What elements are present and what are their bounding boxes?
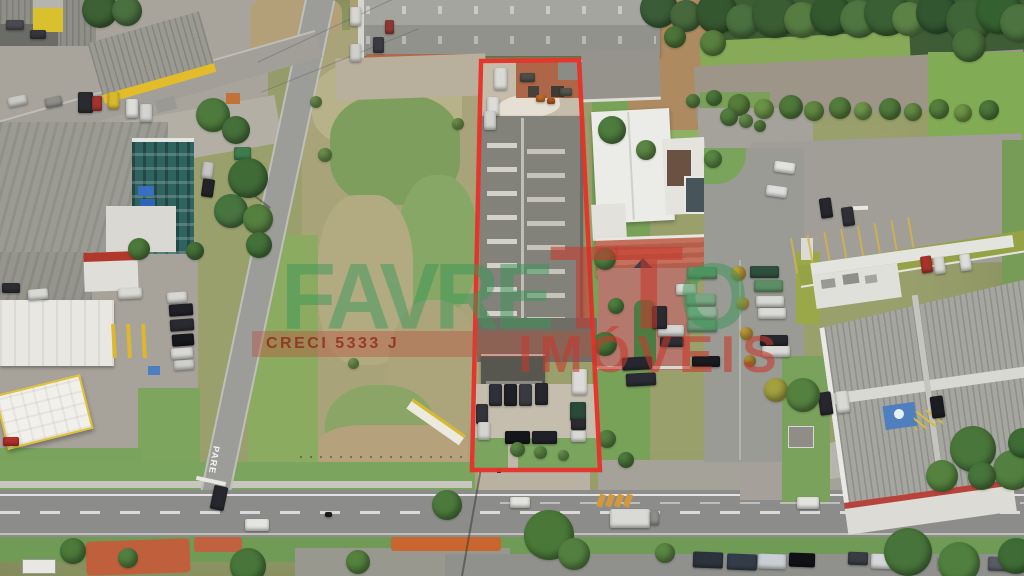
vehicle [572,369,587,395]
vehicle [750,266,779,278]
tree [700,30,726,56]
vehicle [174,359,195,370]
vehicle [819,197,834,218]
tree [593,332,617,356]
tree [664,26,686,48]
vehicle [385,20,394,34]
upper-lot-arrow [852,206,868,211]
vehicle [687,267,717,279]
tree [346,550,370,574]
vehicle [350,44,361,62]
red-roof-shop [83,251,138,292]
warehouse-top-skylights-1 [366,6,656,14]
rooftop-vent-1 [821,278,836,289]
tree [186,242,204,260]
vehicle [536,95,545,102]
vehicle [2,283,20,293]
tree [929,99,949,119]
aerial-photo-scene: PARE [0,0,1024,576]
tree [744,355,756,367]
property-warehouse-skylights-left [487,124,517,318]
vehicle [520,73,535,82]
vehicle [560,88,572,96]
vehicle [727,553,758,570]
tree [904,103,922,121]
white-clinic-left-wing [591,203,627,241]
vehicle [650,511,659,525]
tree [706,90,722,106]
vehicle [201,178,215,197]
vehicle [652,306,667,329]
vehicle [350,7,361,26]
vehicle [478,422,490,440]
tree [230,548,266,576]
tree [804,101,824,121]
property-warehouse-skylights-right [527,130,565,318]
vehicle [622,356,653,371]
tree [754,99,774,119]
vehicle [373,37,384,53]
tree [636,140,656,160]
tree [60,538,86,564]
median-paint-orange-3 [391,537,501,551]
tree [926,460,958,492]
tree [118,548,138,568]
tree [879,98,901,120]
warehouse-right-wing [581,49,661,103]
retail-white-top-strip [810,235,1014,275]
vehicle [687,307,717,319]
tree [228,158,268,198]
property-shed-gray-roof [558,62,582,80]
vehicle [169,303,194,317]
vehicle [519,384,532,406]
vehicle [510,497,530,508]
vehicle [172,333,195,347]
vehicle [532,431,557,444]
vehicle [660,337,684,347]
tree [598,430,616,448]
avenue-edge-line-bottom [0,533,1024,535]
tree [854,102,872,120]
vehicle [687,320,717,332]
vehicle [758,308,786,319]
vehicle [118,287,143,299]
vehicle [754,280,783,292]
tree [318,148,332,162]
tree [979,100,999,120]
tree [510,442,525,457]
vehicle [494,68,507,90]
tree [222,116,250,144]
tree [740,327,753,340]
vehicle [535,383,548,405]
tree [704,150,722,168]
clinic-parking-lane-line [739,260,741,460]
tree [534,446,547,459]
property-warehouse-ridge [521,118,524,318]
tree [558,450,569,461]
vehicle [760,335,788,346]
vehicle [547,98,555,104]
tree [736,297,749,310]
tree [952,28,986,62]
vehicle [686,294,716,306]
grass-top-right-corner [928,52,1024,140]
tree [432,490,462,520]
tree [786,378,820,412]
tree [655,543,675,563]
rooftop-tarp-1 [138,186,154,196]
tree [764,378,788,402]
tree [938,542,980,576]
vehicle [841,206,856,226]
vehicle [171,347,194,360]
vehicle [848,552,868,566]
vehicle [626,372,657,387]
vehicle [789,553,815,568]
median-paint-orange-2 [194,537,242,552]
tree [618,452,634,468]
white-flat-building [0,300,114,366]
tree [954,104,972,122]
tree [754,120,766,132]
vehicle [756,296,784,307]
vehicle [30,30,46,39]
vehicle [758,554,787,570]
tree [452,118,464,130]
tree [128,238,150,260]
tree [594,248,616,270]
vehicle [920,255,933,273]
blue-pavement-mark [148,366,160,375]
vehicle [692,356,720,367]
vehicle [504,384,517,406]
warehouse-top-skylights-2 [366,36,656,44]
tree [968,462,996,490]
vehicle [78,92,93,113]
vehicle [245,519,269,531]
tree [246,232,272,258]
vehicle [108,92,119,109]
tree [608,298,624,314]
tree [829,97,851,119]
vehicle [170,318,195,332]
vehicle [28,288,49,301]
tree [348,358,359,369]
vehicle [6,20,24,30]
utility-shed [788,426,814,448]
tree [884,528,932,576]
orange-hut [226,93,240,104]
tree [779,95,803,119]
vehicle [959,253,972,271]
vehicle [797,497,819,509]
yellow-kiosk [33,0,63,32]
tree [731,266,746,281]
tree [598,116,626,144]
median-paint-orange-1 [85,538,190,576]
bus-shelter [22,559,56,574]
sidewalk-left [0,481,472,488]
vehicle [92,96,102,111]
vehicle [933,256,946,274]
vehicle [476,404,488,424]
vehicle [3,437,19,446]
vehicle [693,551,724,568]
vehicle [610,509,650,528]
vehicle [571,431,586,442]
tree [739,114,753,128]
vehicle [489,384,502,406]
tree [720,108,738,126]
vehicle [571,419,586,430]
utility-pole-1 [497,469,501,473]
vehicle [140,104,152,122]
vehicle [762,346,790,357]
tree [243,204,273,234]
vehicle [201,161,214,179]
vehicle [484,111,496,130]
rooftop-vent-3 [865,274,878,284]
tree [686,94,700,108]
fence-line [300,456,478,458]
vehicle [325,512,332,517]
vehicle [167,291,188,303]
tree [310,96,322,108]
tree [558,538,590,570]
vehicle [126,99,138,118]
